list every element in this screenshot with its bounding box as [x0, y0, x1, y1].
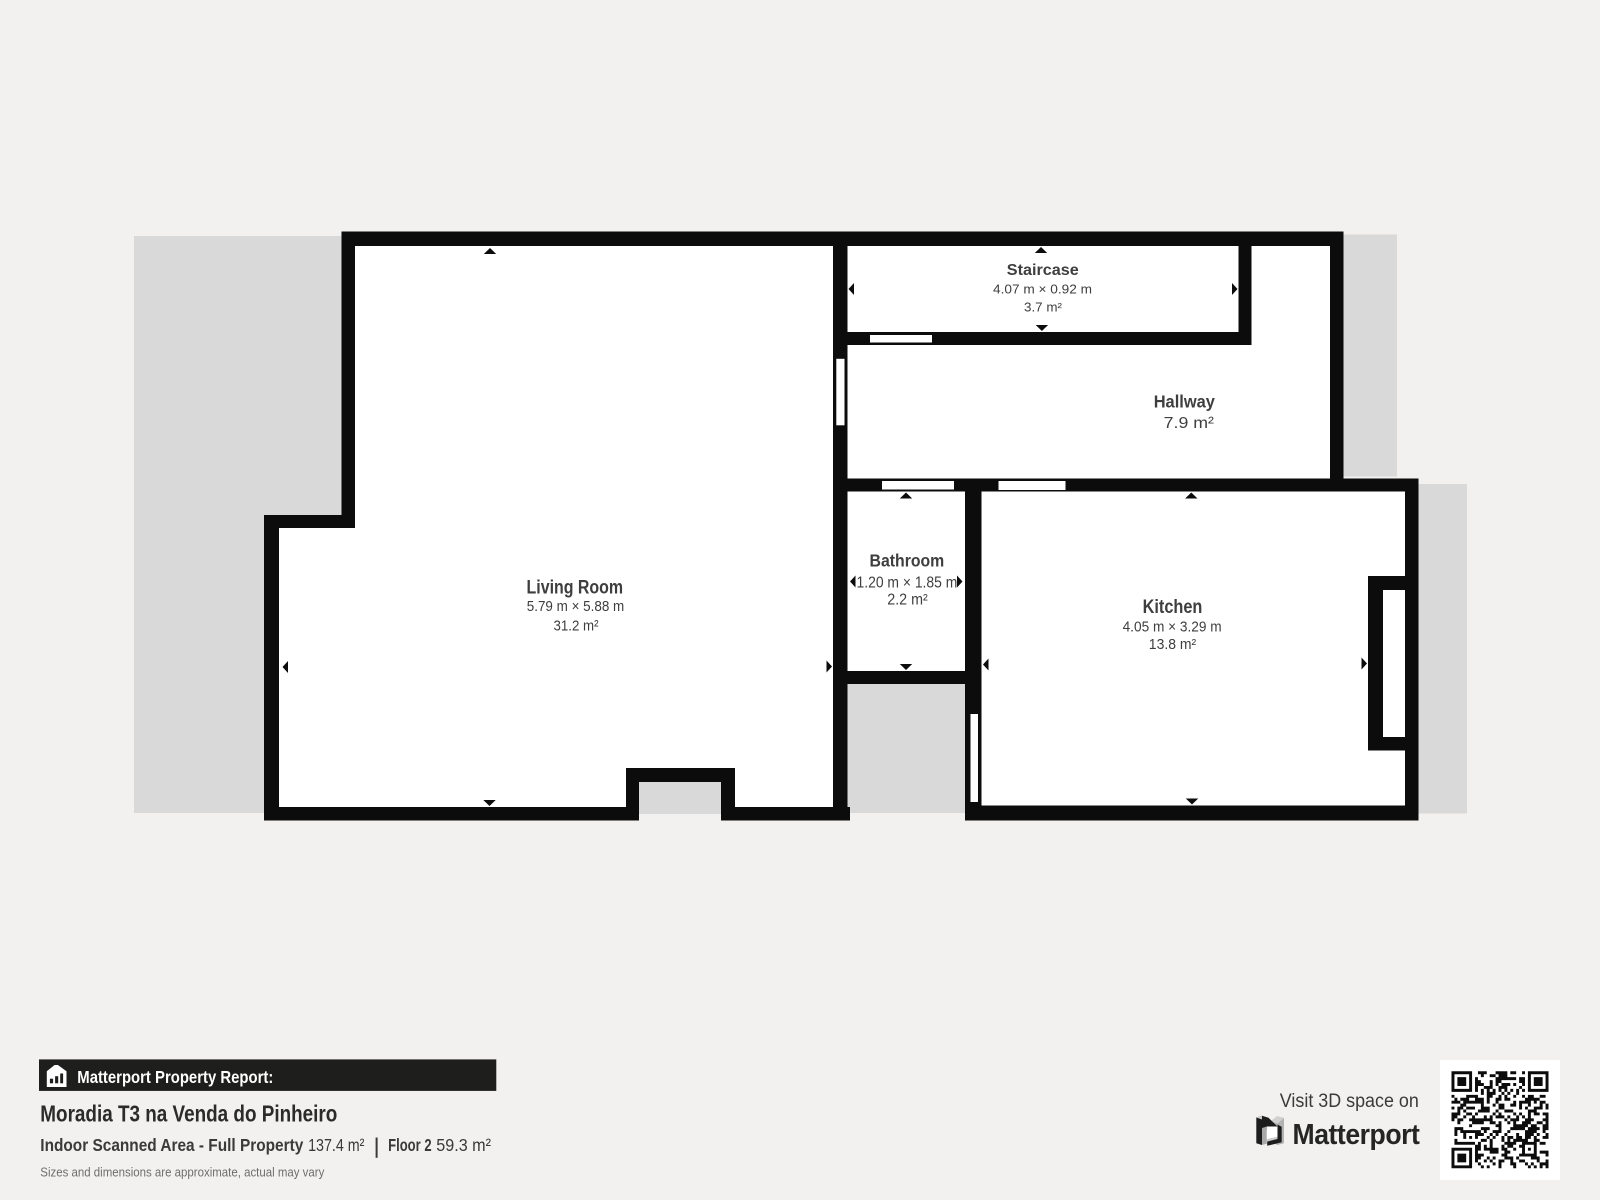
svg-text:Visit 3D space on: Visit 3D space on [1280, 1091, 1419, 1112]
svg-text:Matterport: Matterport [1293, 1119, 1421, 1151]
svg-text:Matterport Property Report:: Matterport Property Report: [77, 1067, 273, 1087]
svg-text:Hallway: Hallway [1154, 391, 1215, 411]
svg-text:Indoor Scanned Area - Full Pro: Indoor Scanned Area - Full Property [40, 1135, 303, 1155]
svg-text:Kitchen: Kitchen [1143, 597, 1203, 618]
svg-text:4.07 m × 0.92 m: 4.07 m × 0.92 m [993, 281, 1092, 296]
svg-text:Staircase: Staircase [1007, 262, 1079, 279]
svg-text:Living Room: Living Room [527, 578, 624, 599]
svg-text:Sizes and dimensions are appro: Sizes and dimensions are approximate, ac… [40, 1165, 324, 1180]
svg-text:137.4 m²: 137.4 m² [308, 1135, 364, 1155]
svg-text:31.2 m²: 31.2 m² [554, 618, 599, 635]
svg-text:Bathroom: Bathroom [870, 551, 945, 571]
svg-text:Floor 2: Floor 2 [388, 1135, 432, 1155]
svg-text:4.05 m × 3.29 m: 4.05 m × 3.29 m [1123, 620, 1222, 636]
svg-text:2.2 m²: 2.2 m² [887, 592, 928, 609]
svg-text:13.8 m²: 13.8 m² [1149, 637, 1197, 653]
svg-text:59.3 m²: 59.3 m² [436, 1135, 491, 1155]
svg-text:1.20 m × 1.85 m: 1.20 m × 1.85 m [857, 575, 958, 592]
svg-text:Moradia T3 na Venda do Pinheir: Moradia T3 na Venda do Pinheiro [40, 1100, 337, 1126]
svg-text:5.79 m × 5.88 m: 5.79 m × 5.88 m [527, 598, 625, 615]
svg-text:7.9 m²: 7.9 m² [1164, 415, 1215, 432]
svg-text:3.7 m²: 3.7 m² [1024, 300, 1063, 315]
